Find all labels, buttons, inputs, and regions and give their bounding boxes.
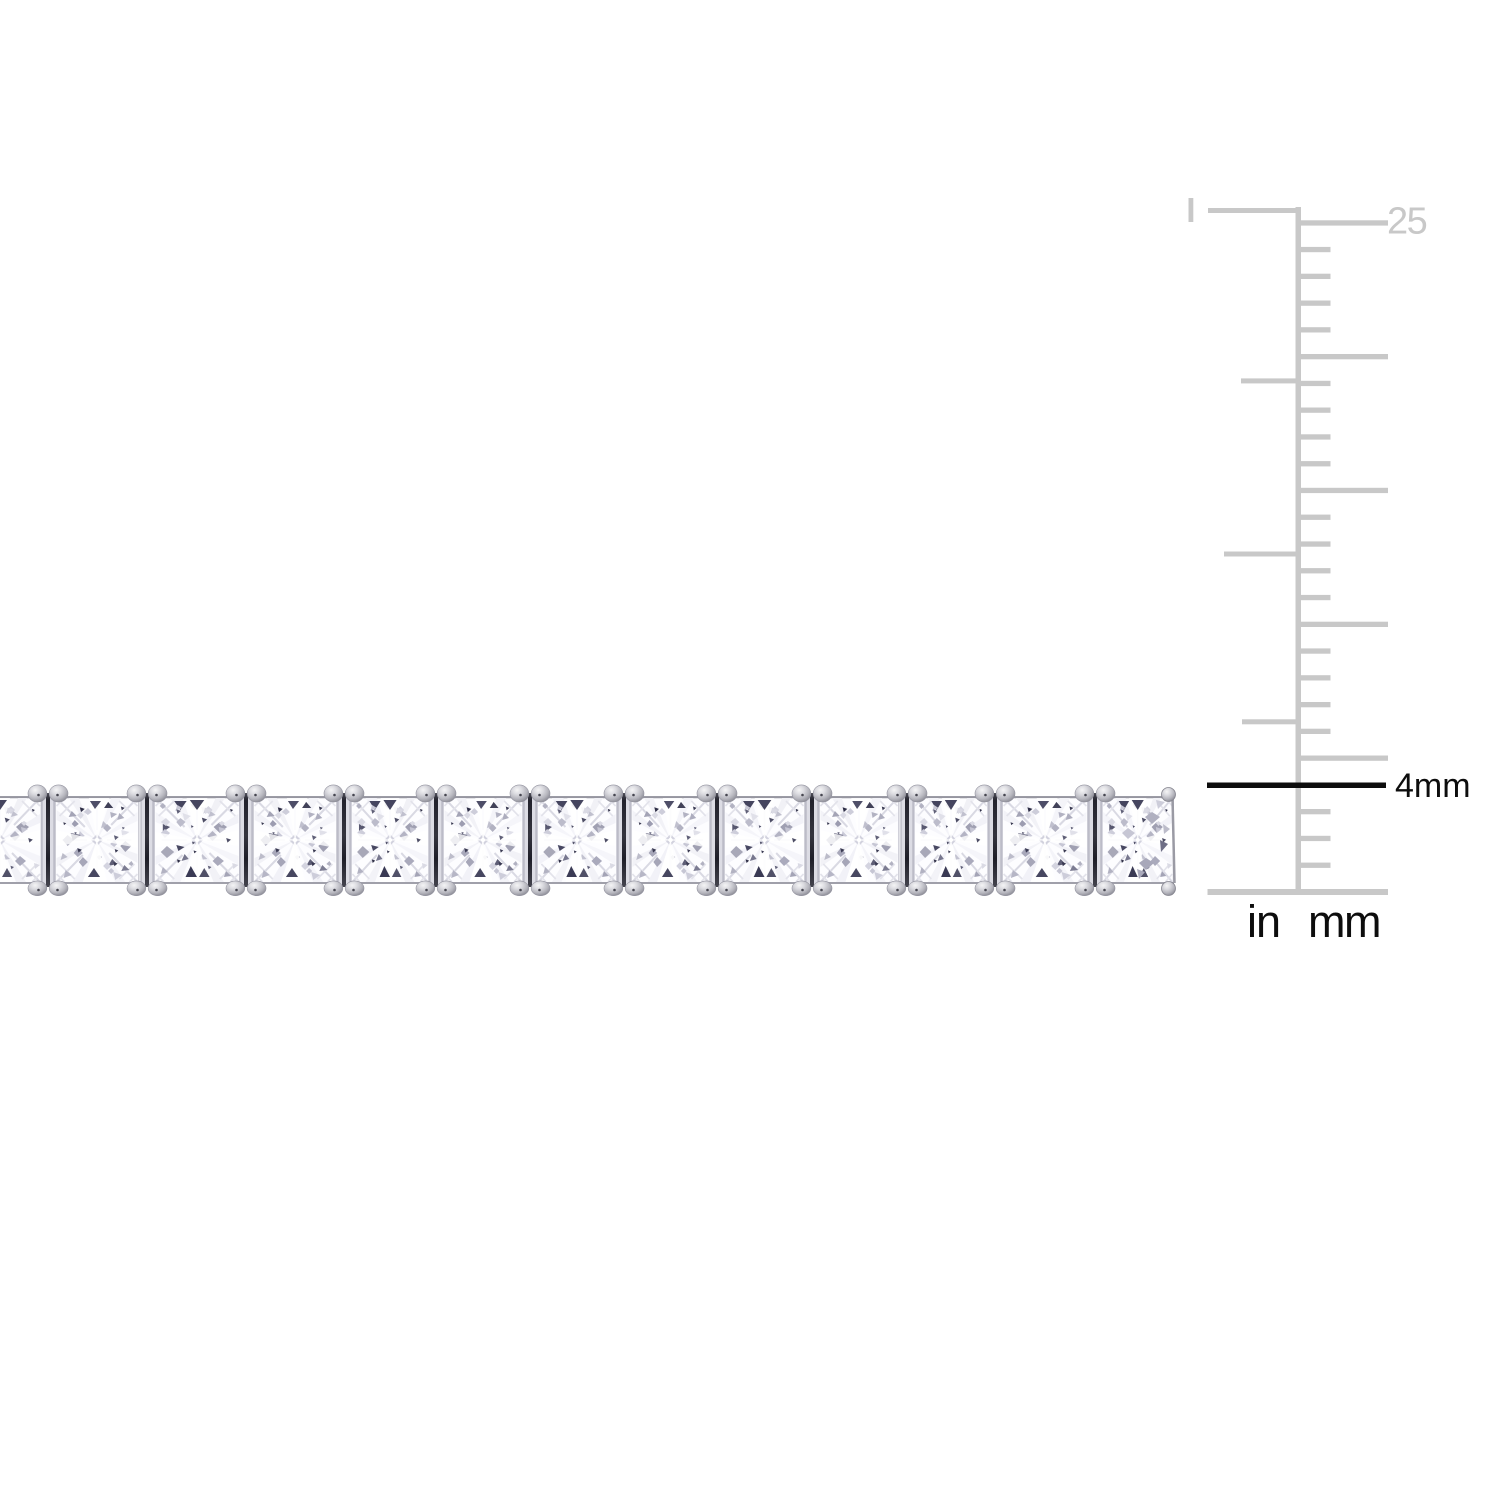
svg-text:mm: mm [1308,896,1380,947]
svg-text:25: 25 [1387,201,1427,243]
svg-text:4mm: 4mm [1395,767,1471,805]
svg-text:in: in [1247,896,1280,947]
